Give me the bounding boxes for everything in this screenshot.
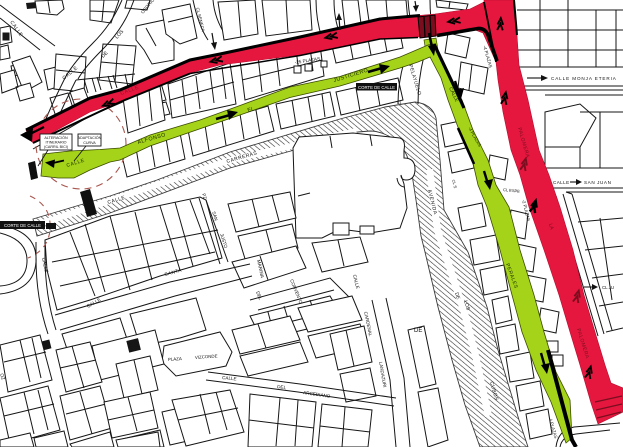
svg-text:ITINERARIO: ITINERARIO — [45, 141, 66, 145]
svg-text:CALLE: CALLE — [553, 180, 570, 185]
svg-text:(CARRIL BICI): (CARRIL BICI) — [44, 145, 68, 149]
svg-text:CORTE DE CALLE: CORTE DE CALLE — [358, 85, 395, 90]
svg-text:CURVA: CURVA — [83, 141, 96, 145]
svg-text:DE: DE — [414, 328, 422, 334]
svg-text:CORTE DE CALLE: CORTE DE CALLE — [4, 223, 41, 228]
svg-text:CALLE MONJA ETERIA: CALLE MONJA ETERIA — [551, 76, 617, 81]
svg-text:PLAZA: PLAZA — [168, 356, 182, 362]
svg-text:CL JU: CL JU — [602, 285, 614, 290]
svg-text:SAN JUAN: SAN JUAN — [584, 180, 612, 185]
svg-text:ADAPTACIÓN: ADAPTACIÓN — [78, 135, 102, 140]
svg-text:ALTERACIÓN: ALTERACIÓN — [44, 135, 68, 140]
